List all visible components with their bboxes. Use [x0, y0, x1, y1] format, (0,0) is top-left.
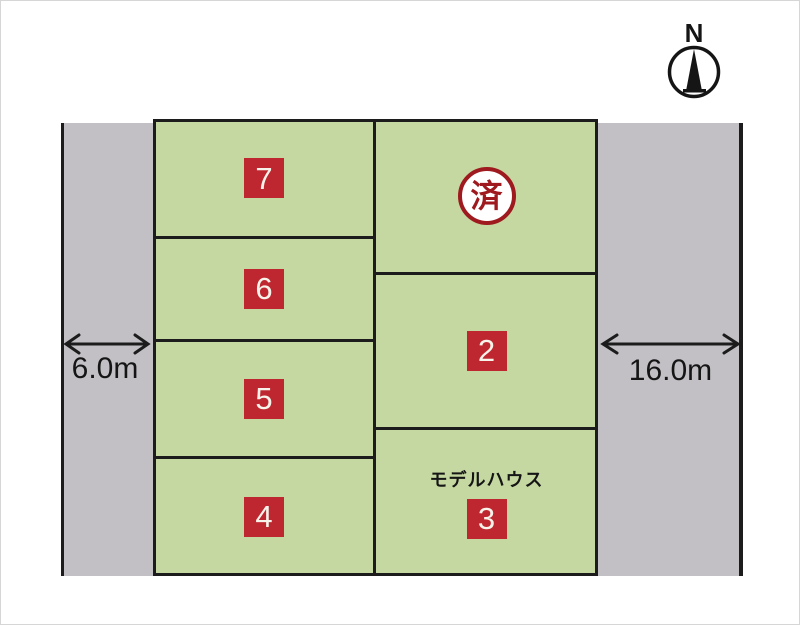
plot-map-canvas: 7 6 5 4 済 2 モデルハウス 3 6.0m 16.0m N: [0, 0, 800, 625]
plot-7: 7: [153, 119, 375, 237]
plot-6-number-badge: 6: [244, 269, 284, 309]
plot-7-number-badge: 7: [244, 158, 284, 198]
road-right-width-label: 16.0m: [598, 354, 743, 388]
plot-4: 4: [153, 457, 375, 576]
plot-2-number-badge: 2: [467, 331, 507, 371]
road-left-width-label: 6.0m: [59, 352, 151, 386]
model-house-label: モデルハウス: [430, 466, 544, 492]
plot-3: モデルハウス 3: [375, 428, 598, 576]
plot-2: 2: [375, 273, 598, 428]
compass-north-label: N: [685, 18, 704, 48]
plot-3-number-badge: 3: [467, 499, 507, 539]
compass-north-icon: N: [657, 13, 733, 101]
plot-sold: 済: [375, 119, 598, 273]
plot-6: 6: [153, 237, 375, 340]
plot-5-number-badge: 5: [244, 379, 284, 419]
sold-stamp-icon: 済: [458, 167, 516, 225]
plot-4-number-badge: 4: [244, 497, 284, 537]
plot-5: 5: [153, 340, 375, 457]
